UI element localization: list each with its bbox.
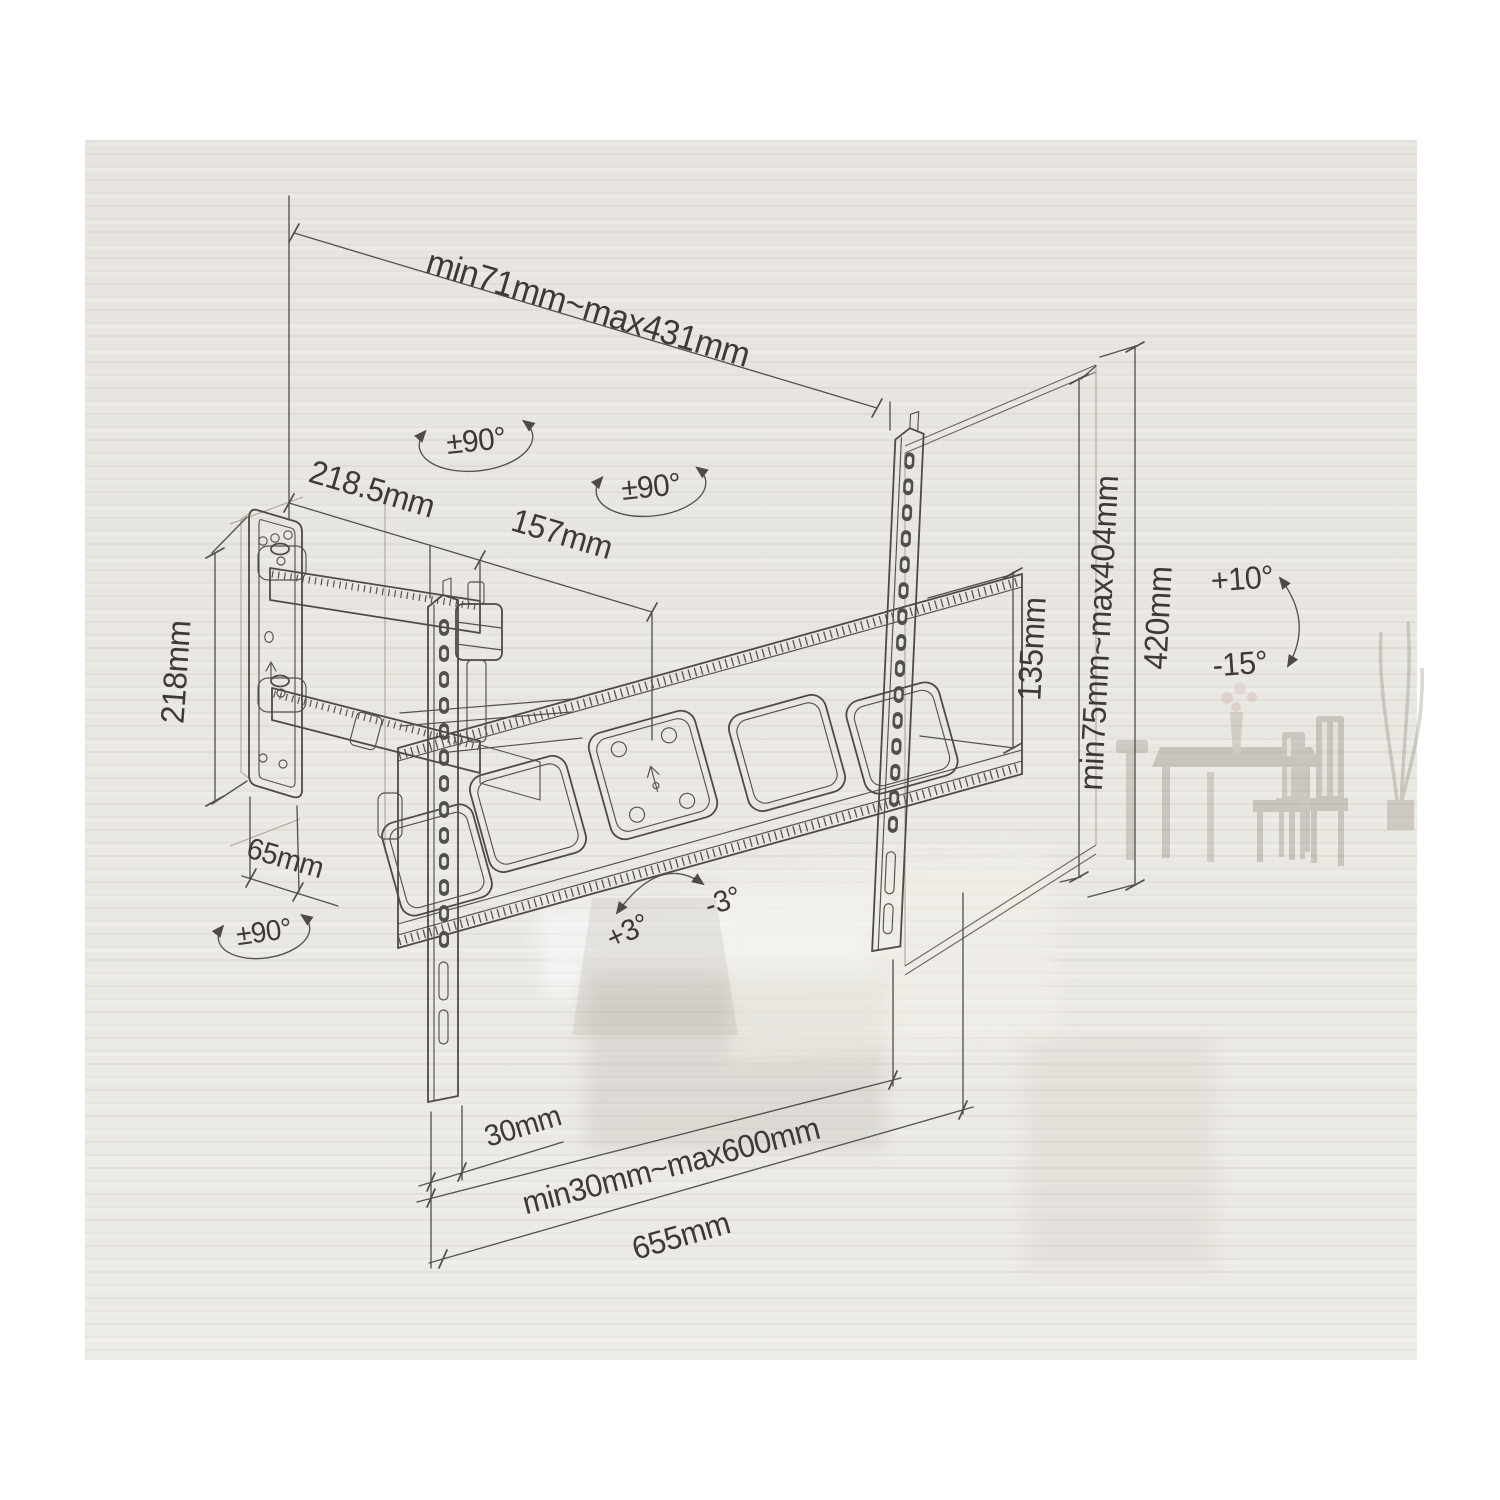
left-tv-rail: [428, 578, 458, 1102]
up-arrow-icon: [645, 765, 664, 793]
rail-slot: [439, 962, 448, 1000]
keyhole: [265, 632, 273, 643]
tilt-arrow-icon: [1280, 578, 1299, 666]
chair: [1116, 740, 1148, 860]
rail-slot: [885, 852, 896, 894]
rail-slot: [439, 1010, 448, 1044]
dimension-lines: [206, 196, 1144, 1268]
dining-room-scene: [572, 622, 1422, 1035]
lower-arm: [272, 688, 480, 839]
chair: [1308, 716, 1348, 866]
rail-slot: [883, 904, 893, 934]
screenshot-page: min71mm~max431mm ±90° ±90° 218.5mm 157mm…: [0, 0, 1500, 1500]
wall-plate-height-label: 218mm: [153, 619, 198, 725]
rail-height-label: 420mm: [1136, 565, 1179, 670]
swivel-front-label: ±90°: [620, 466, 683, 508]
upper-hinge: [258, 544, 306, 581]
right-tv-rail: [872, 411, 925, 953]
tilt-up-label: +10°: [1210, 558, 1275, 599]
rail-slot-span-label: 135mm: [1010, 596, 1053, 701]
wall-plate: [241, 510, 306, 798]
flower-vase: [1221, 683, 1257, 754]
potted-plant: [1381, 622, 1423, 830]
swivel-upper-label: ±90°: [445, 420, 508, 462]
lower-hinge: [258, 676, 306, 713]
vesa-plate: [585, 707, 720, 842]
wall-reference-lines: [230, 497, 385, 852]
pivot-assembly: [456, 582, 540, 800]
beam-cutout: [725, 691, 848, 814]
tilt-down-label: -15°: [1211, 644, 1268, 685]
tv-panel-outline: [905, 365, 1096, 975]
mount-dimension-diagram: [0, 0, 1500, 1500]
